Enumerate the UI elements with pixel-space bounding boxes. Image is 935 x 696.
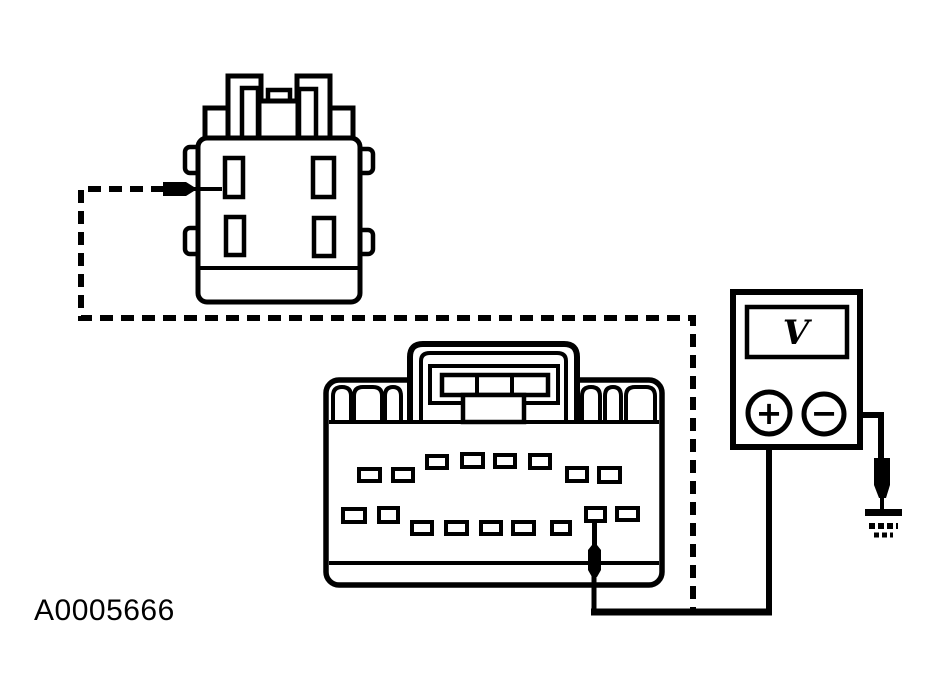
relay-pin [225,158,243,197]
ground-bar [865,509,902,516]
voltmeter: V + − [733,292,860,447]
ground-test-probe-icon [874,458,890,498]
relay-pin [314,218,334,256]
wiring-test-diagram: V + − A0005666 [0,0,935,696]
connector-pin [446,522,467,534]
earth-ground-icon [865,509,902,535]
relay-pin [226,217,244,255]
breakout-connector [326,344,662,585]
latch-bar [442,375,548,395]
connector-pin [343,509,365,522]
latch-center-block [463,395,524,422]
connector-pin-probed [586,508,605,521]
connector-pin [599,468,620,482]
relay-pin [313,158,334,197]
connector-pin [530,455,550,468]
connector-pin [552,522,570,534]
connector-pin [393,469,413,481]
connector-pin [513,522,534,534]
connector-pin [481,522,501,534]
connector-pin [427,456,447,468]
connector-pin [462,454,483,467]
connector-pin [379,508,398,522]
diagram-canvas: V + − A0005666 [0,0,935,696]
figure-label: A0005666 [34,594,175,627]
minus-terminal-label: − [811,394,838,432]
connector-pin [359,469,380,481]
ground-connection [865,458,902,535]
connector-pin [495,455,515,467]
connector-pin [567,468,587,481]
voltmeter-display-symbol: V [783,313,813,353]
connector-pin [617,508,638,520]
connector-pin [412,522,432,534]
plus-terminal-label: + [756,394,783,432]
